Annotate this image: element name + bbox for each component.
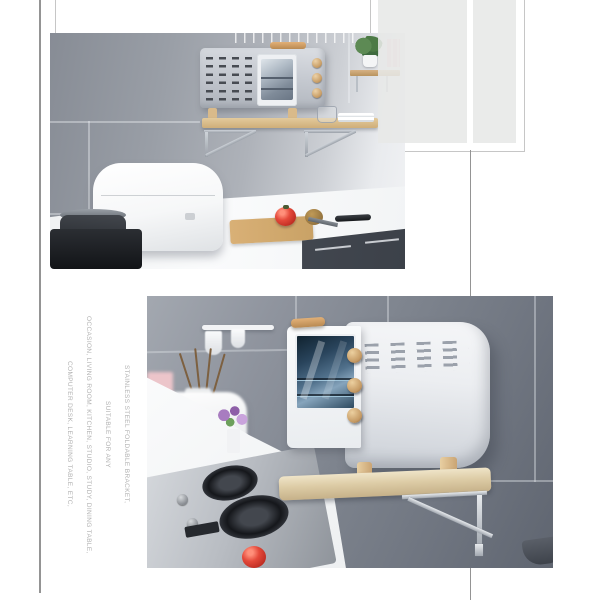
oven-knob: [312, 88, 322, 98]
oven-knob: [347, 348, 362, 363]
folding-bracket: [204, 130, 256, 160]
gas-stove: [50, 229, 142, 269]
cutting-board: [229, 216, 313, 244]
oven-rack: [261, 77, 293, 79]
tomato: [242, 546, 266, 568]
decor-line-top-short: [55, 0, 56, 33]
oven-glass: [261, 59, 293, 100]
oven-wood-handle: [270, 42, 306, 49]
grout-line: [534, 296, 536, 482]
grout-line: [487, 480, 553, 482]
glass-reflection: [300, 340, 325, 399]
folding-bracket: [304, 130, 356, 160]
oven-knob: [312, 58, 322, 68]
hanging-cup: [205, 331, 222, 355]
bracket-wall-mount: [475, 544, 483, 556]
oven-door: [257, 54, 297, 106]
glass-reflection: [322, 340, 347, 399]
oven-rack: [261, 88, 293, 90]
tomato: [275, 207, 296, 226]
kitchen-photo-top: [50, 33, 405, 269]
hanging-cup: [231, 329, 245, 348]
plate-stack: [338, 113, 374, 122]
page-canvas: STAINLESS STEEL FOLDABLE BRACKET, SUITAB…: [0, 0, 600, 600]
glass-jar: [317, 106, 337, 123]
stove-knob: [177, 494, 188, 505]
oven-glass: [295, 334, 356, 410]
flowers: [215, 404, 251, 432]
grout-line: [348, 33, 350, 103]
shelf-bracket-icon: [356, 76, 358, 92]
kitchen-photo-bottom: [147, 296, 553, 568]
oven-vents: [365, 340, 470, 374]
caption-line: OCCASION, LIVING ROOM, KITCHEN, STUDIO, …: [79, 296, 98, 573]
decor-line-left: [39, 0, 41, 593]
grout-line: [387, 296, 389, 322]
toaster-oven: [200, 48, 325, 108]
oven-vents: [206, 57, 256, 105]
flower-vase: [227, 429, 240, 453]
toaster-oven: [287, 320, 502, 472]
oven-knob: [312, 73, 322, 83]
caption-line: SUITABLE FOR ANY: [98, 296, 117, 573]
plant-pot: [363, 55, 377, 67]
bracket-arm: [477, 495, 482, 547]
oven-knob: [347, 378, 362, 393]
decor-gray-block-left: [378, 0, 467, 143]
oven-knob: [347, 408, 362, 423]
grout-line: [88, 121, 90, 213]
tomato-stem: [283, 205, 289, 209]
caption-line: COMPUTER DESK, LEARNING TABLE, ETC,: [60, 296, 79, 573]
caption-line: STAINLESS STEEL FOLDABLE BRACKET,: [117, 296, 136, 573]
caption-vertical-text: STAINLESS STEEL FOLDABLE BRACKET, SUITAB…: [59, 296, 136, 573]
decor-gray-block-right: [473, 0, 516, 143]
grout-line: [50, 121, 200, 123]
